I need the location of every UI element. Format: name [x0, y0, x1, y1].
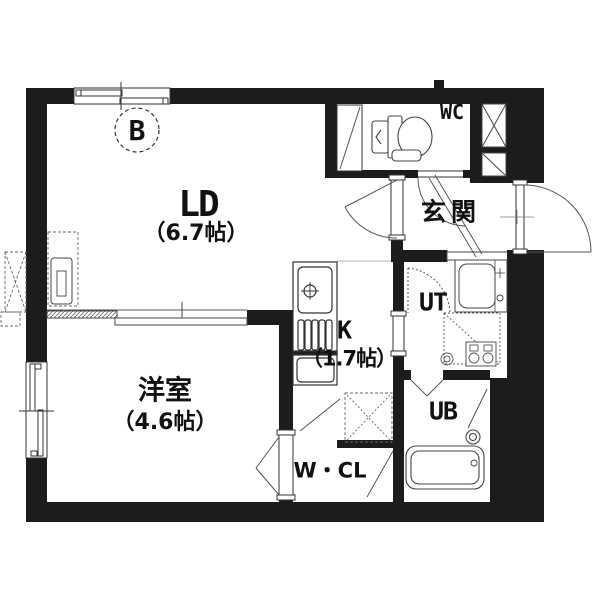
- wall-top-left: [26, 88, 74, 104]
- wall-shaft-left: [470, 104, 482, 183]
- wall-wc-bottom: [325, 170, 418, 178]
- meter-box-icon: [1, 252, 26, 326]
- room-area-ld: （6.7帖）: [144, 223, 249, 245]
- washer-space-icon: [441, 313, 500, 366]
- wall-right-upper: [506, 104, 544, 183]
- western-closet-door-icon: [256, 430, 295, 500]
- wall-wc-bottom-right: [463, 170, 470, 178]
- room-label-entrance: 玄関: [421, 200, 481, 225]
- wall-storage-left: [325, 104, 337, 172]
- bath-door-icon: [411, 380, 443, 396]
- room-label-closet: W・CL: [294, 461, 367, 482]
- water-heater-icon: [48, 232, 78, 306]
- wall-bath-right-seg: [443, 370, 490, 380]
- wall-western-kitchen: [279, 325, 293, 434]
- room-label-wc: WC: [440, 102, 464, 122]
- wall-closet-top: [337, 440, 393, 448]
- wall-shoebox-bottom: [482, 176, 506, 183]
- hall-door-icon: [345, 175, 405, 240]
- wall-western-post: [279, 497, 293, 502]
- utility-opening-line: [447, 250, 507, 262]
- wall-utility-lower: [393, 352, 404, 502]
- wall-left-upper: [26, 104, 47, 362]
- room-label-western: 洋室: [138, 378, 192, 405]
- window-top-icon: [74, 82, 170, 110]
- entry-door-icon: [500, 180, 591, 254]
- balcony-marker: B: [129, 117, 146, 145]
- wall-right-lower: [507, 250, 544, 502]
- wall-ld-western: [247, 310, 295, 325]
- toilet-icon: [372, 116, 432, 161]
- vanity-sink-icon: [455, 260, 507, 312]
- room-label-ub: UB: [429, 399, 457, 424]
- sliding-door-icon: [47, 302, 247, 325]
- room-label-ld: LD: [178, 187, 217, 223]
- room-label-kitchen: K: [337, 318, 351, 343]
- storage-icon: [337, 105, 362, 171]
- floor-plan: B LD （6.7帖） 洋室 （4.6帖） K （1.7帖） 玄関 WC UT …: [0, 0, 600, 600]
- wall-shaft-bottom: [482, 147, 506, 153]
- wall-bottom: [26, 502, 544, 522]
- wall-left-lower: [26, 458, 47, 502]
- wall-top-main: [170, 88, 544, 104]
- refrigerator-space-icon: [345, 393, 392, 442]
- wall-top-bump: [434, 80, 444, 88]
- wall-entrance-utility: [391, 250, 447, 262]
- room-area-kitchen: （1.7帖）: [302, 349, 396, 370]
- window-left-icon: [19, 362, 54, 458]
- shoe-cabinet-icon: [482, 153, 506, 176]
- wall-utility-upper: [393, 262, 404, 315]
- wall-bath-left-seg: [404, 370, 411, 380]
- wall-right-bath: [490, 378, 507, 502]
- pipe-space-icon: [482, 104, 506, 147]
- room-label-ut: UT: [419, 290, 447, 315]
- room-area-western: （4.6帖）: [113, 412, 218, 434]
